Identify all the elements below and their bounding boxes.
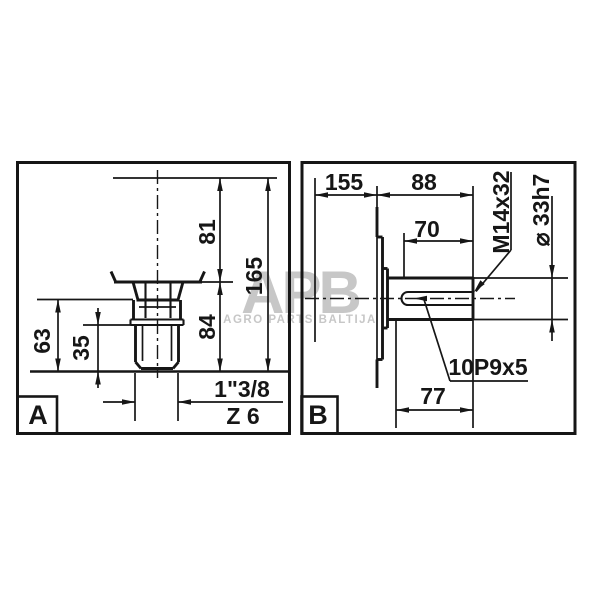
panel-b-label: B [308,400,328,430]
dim-77-label: 77 [420,383,446,409]
dim-35-label: 35 [68,335,94,361]
diameter-spec-label: ⌀ 33h7 [528,174,554,247]
dim-155-label: 155 [325,169,364,195]
dim-70-label: 70 [414,216,440,242]
dim-84-label: 84 [194,314,220,340]
dim-165-label: 165 [241,257,267,296]
technical-drawing-canvas: APB AGRO PARTS BALTIJA A [0,0,600,600]
drawing-svg: A [0,0,600,600]
thread-spec-label: M14x32 [488,170,514,253]
panel-a: A [18,163,290,434]
dim-88-label: 88 [411,169,437,195]
keyway-spec-label: 10P9x5 [448,354,528,380]
spline-count-label: Z 6 [226,403,259,429]
spline-spec-label: 1"3/8 [214,376,270,402]
panel-b-flange-outline [377,186,388,388]
panel-a-label: A [28,400,48,430]
panel-b: B [302,163,576,434]
dim-81-label: 81 [194,219,220,245]
dim-63-label: 63 [29,328,55,354]
